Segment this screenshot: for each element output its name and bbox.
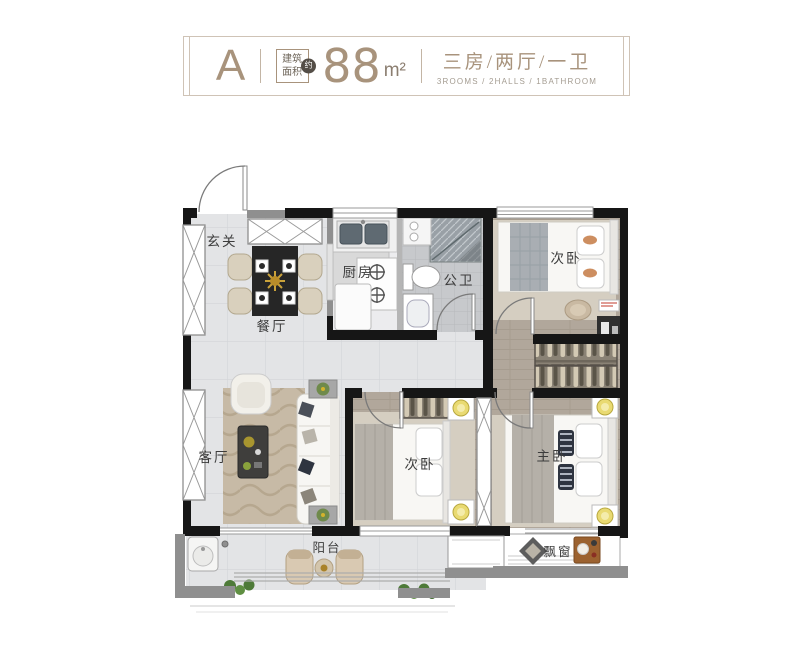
- table-centerpiece: [265, 271, 285, 291]
- bed-master-blanket: [512, 415, 554, 523]
- balcony-sliding-door: [220, 528, 312, 534]
- armchair-seat: [237, 382, 265, 408]
- floor-plan-svg: 玄关 餐厅 厨房 公卫 次卧 客厅 次卧 主卧 阳台 飘窗: [0, 0, 800, 662]
- room-label-dining: 餐厅: [257, 319, 288, 334]
- bed-top-blanket: [510, 223, 548, 291]
- wardrobes: [535, 338, 617, 393]
- bed-mid-blanket: [355, 424, 393, 520]
- room-label-bedroom-mid: 次卧: [405, 457, 436, 472]
- room-label-master: 主卧: [537, 449, 568, 464]
- kitchen-window: [333, 208, 397, 218]
- window-sill-box: [448, 536, 504, 568]
- bedroom-top-window: [497, 207, 593, 218]
- sofa-back: [330, 396, 339, 522]
- fridge: [335, 284, 371, 330]
- bath-basin-bowl: [407, 300, 429, 327]
- room-label-living: 客厅: [199, 449, 230, 465]
- room-label-kitchen: 厨房: [343, 265, 374, 280]
- living-bedroom-divider: [345, 388, 353, 536]
- duct-pillar: [477, 388, 493, 536]
- dining-chair: [298, 288, 322, 314]
- bath-shelf: [403, 218, 431, 245]
- room-label-bay-window: 飘窗: [543, 545, 572, 559]
- left-window-upper: [183, 225, 205, 335]
- room-label-entry: 玄关: [207, 233, 238, 249]
- pillow: [416, 428, 442, 460]
- toilet: [412, 266, 440, 288]
- dining-chair: [298, 254, 322, 280]
- bed-top-headboard: [610, 220, 618, 294]
- faucet: [361, 220, 365, 224]
- floor-plan-page: A 建筑 面积 约 88 m² 三房/两厅/一卫 3ROOMS / 2HALLS…: [0, 0, 800, 662]
- room-label-balcony: 阳台: [312, 540, 341, 555]
- pillow: [576, 424, 602, 458]
- dining-chair: [228, 254, 252, 280]
- dining-chair: [228, 288, 252, 314]
- coffee-table: [238, 426, 268, 478]
- left-window-lower: [183, 390, 205, 500]
- balcony-parapet-left: [175, 534, 185, 590]
- entry-door: [199, 166, 247, 212]
- pillow: [576, 462, 602, 496]
- bay-parapet: [493, 566, 628, 578]
- kitchen-bath-divider: [397, 218, 402, 330]
- bedroom-top-left-wall: [483, 218, 493, 398]
- floor-drain: [222, 541, 228, 547]
- room-label-bathroom: 公卫: [444, 273, 475, 288]
- bedroom-mid-window: [360, 526, 450, 536]
- room-label-bedroom-top: 次卧: [551, 251, 582, 266]
- entry-cabinet: [248, 219, 322, 244]
